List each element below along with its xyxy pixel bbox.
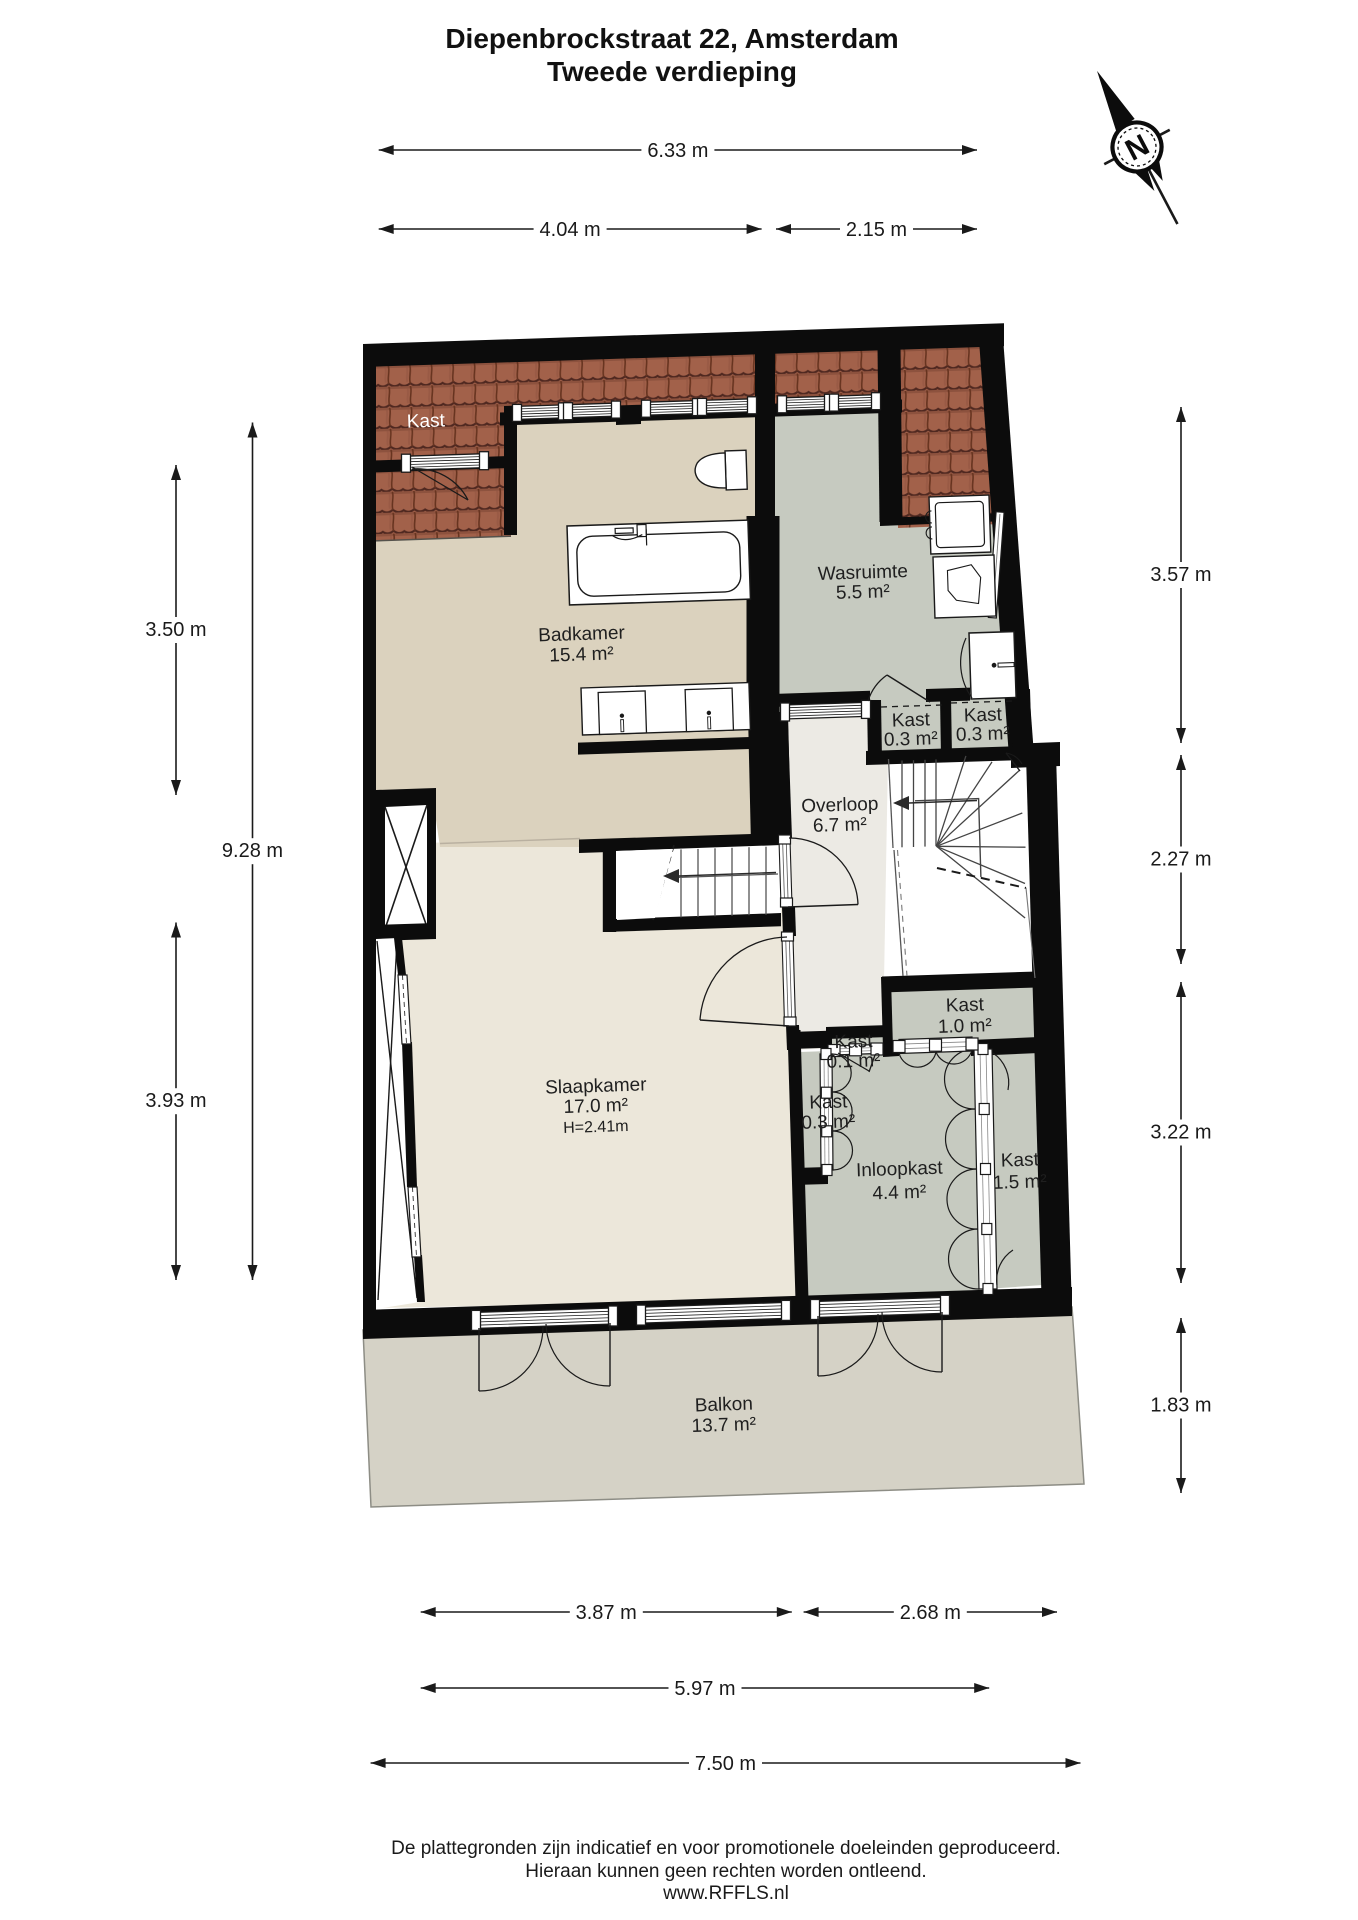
svg-text:Hieraan kunnen geen rechten wo: Hieraan kunnen geen rechten worden ontle… [525,1861,926,1882]
svg-text:4.4 m²: 4.4 m² [872,1182,927,1205]
svg-text:3.87 m: 3.87 m [576,1602,637,1624]
svg-text:3.93 m: 3.93 m [145,1090,206,1112]
svg-text:Inloopkast: Inloopkast [856,1158,944,1182]
svg-text:6.7 m²: 6.7 m² [813,814,868,837]
svg-text:H=2.41m: H=2.41m [563,1118,629,1137]
svg-text:6.33 m: 6.33 m [647,140,708,162]
svg-text:Kast: Kast [406,410,445,432]
svg-text:De plattegronden zijn indicati: De plattegronden zijn indicatief en voor… [391,1838,1061,1859]
svg-text:15.4 m²: 15.4 m² [549,643,614,666]
svg-text:Slaapkamer: Slaapkamer [545,1074,648,1098]
svg-text:1.5 m²: 1.5 m² [993,1171,1048,1194]
svg-text:Kast: Kast [1000,1149,1039,1171]
svg-text:3.50 m: 3.50 m [145,619,206,641]
svg-text:4.04 m: 4.04 m [540,219,601,241]
svg-text:0.3 m²: 0.3 m² [801,1111,856,1134]
svg-text:Tweede verdieping: Tweede verdieping [547,56,797,87]
svg-text:2.27 m: 2.27 m [1150,849,1211,871]
svg-text:0.1 m²: 0.1 m² [826,1050,881,1073]
svg-text:0.3 m²: 0.3 m² [884,728,939,751]
svg-text:3.22 m: 3.22 m [1150,1122,1211,1144]
svg-text:Diepenbrockstraat 22, Amsterda: Diepenbrockstraat 22, Amsterdam [445,23,898,54]
svg-text:1.83 m: 1.83 m [1150,1395,1211,1417]
svg-text:Kast: Kast [945,994,984,1016]
svg-text:1.0 m²: 1.0 m² [938,1015,993,1038]
svg-text:Balkon: Balkon [694,1394,753,1417]
svg-text:www.RFFLS.nl: www.RFFLS.nl [662,1883,789,1904]
svg-text:13.7 m²: 13.7 m² [691,1414,756,1437]
svg-text:5.5 m²: 5.5 m² [836,581,891,604]
svg-text:Kast: Kast [809,1091,848,1113]
svg-text:Overloop: Overloop [801,794,879,817]
svg-text:0.3 m²: 0.3 m² [956,723,1011,746]
svg-text:5.97 m: 5.97 m [674,1678,735,1700]
svg-text:2.68 m: 2.68 m [900,1602,961,1624]
svg-text:9.28 m: 9.28 m [222,840,283,862]
svg-text:17.0 m²: 17.0 m² [563,1095,628,1118]
svg-text:7.50 m: 7.50 m [695,1753,756,1775]
svg-text:2.15 m: 2.15 m [846,219,907,241]
svg-text:3.57 m: 3.57 m [1150,564,1211,586]
